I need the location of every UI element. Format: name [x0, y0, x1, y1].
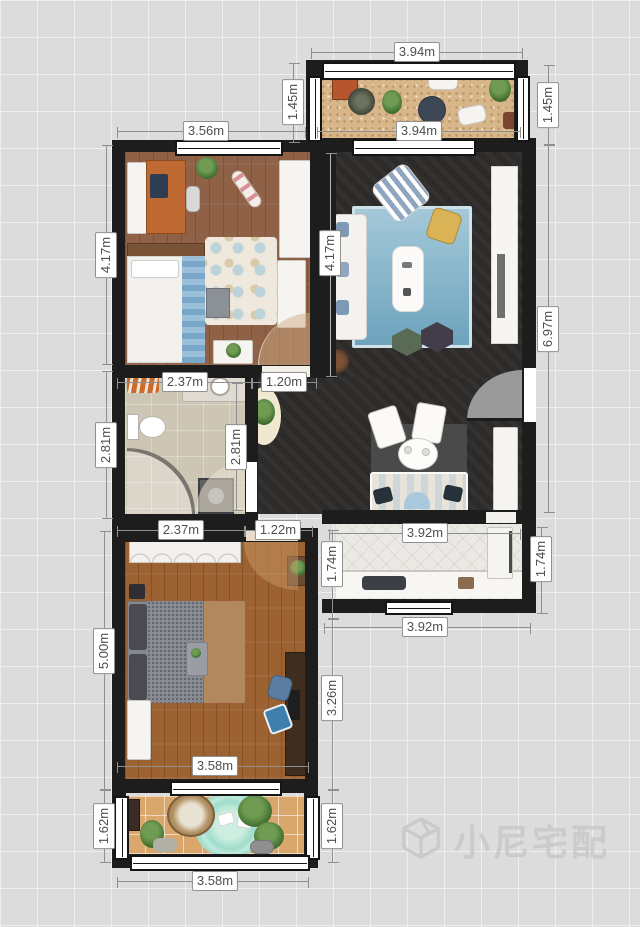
- dimension-text: 6.97m: [540, 311, 555, 347]
- pillow[interactable]: [129, 654, 147, 700]
- cube-logo-icon: [398, 815, 444, 866]
- dimension-text: 1.45m: [285, 84, 300, 120]
- stove[interactable]: [458, 577, 474, 589]
- side-table[interactable]: [206, 288, 230, 318]
- plate: [404, 446, 412, 454]
- wall-bedroom2-right: [305, 528, 318, 793]
- dimension-label: 3.26m: [321, 675, 343, 721]
- dimension-text: 1.62m: [324, 808, 339, 844]
- potted-plant[interactable]: [226, 343, 241, 358]
- dimension-label: 6.97m: [537, 306, 559, 352]
- round-table[interactable]: [418, 96, 446, 124]
- window-balcony2-right[interactable]: [305, 796, 320, 860]
- window-balcony-left[interactable]: [308, 76, 322, 142]
- pipe: [509, 531, 512, 573]
- door-leaf-entry[interactable]: [467, 418, 523, 421]
- entry-cabinet[interactable]: [493, 427, 518, 511]
- hanging-egg-chair[interactable]: [167, 793, 215, 837]
- tray-plant: [191, 648, 201, 658]
- bookshelf[interactable]: [127, 162, 147, 234]
- toilet-tank[interactable]: [127, 414, 139, 440]
- laptop[interactable]: [150, 174, 168, 198]
- coffee-table[interactable]: [392, 246, 424, 312]
- wardrobe[interactable]: [279, 160, 311, 258]
- door-opening-bathroom[interactable]: [246, 462, 257, 512]
- dimension-label: 4.17m: [319, 230, 341, 276]
- window-balcony2-left[interactable]: [114, 796, 129, 860]
- dimension-label: 2.81m: [225, 424, 247, 470]
- dimension-label: 3.56m: [183, 121, 229, 141]
- nightstand[interactable]: [129, 584, 145, 599]
- toilet[interactable]: [139, 416, 166, 438]
- dimension-label: 1.45m: [282, 79, 304, 125]
- dimension-label: 2.81m: [95, 422, 117, 468]
- window-balcony2-bottom[interactable]: [130, 855, 310, 871]
- dimension-text: 1.74m: [324, 546, 339, 582]
- dimension-label: 3.94m: [394, 42, 440, 62]
- window-bedroom1-top[interactable]: [175, 140, 283, 156]
- dimension-label: 3.92m: [402, 617, 448, 637]
- dimension-text: 2.37m: [167, 374, 203, 389]
- dimension-text: 3.26m: [324, 680, 339, 716]
- sofa-pillow[interactable]: [336, 300, 349, 315]
- dimension-text: 2.81m: [98, 427, 113, 463]
- dimension-text: 1.45m: [540, 87, 555, 123]
- pillow[interactable]: [129, 604, 147, 650]
- stepping-stone: [153, 838, 177, 852]
- pillow[interactable]: [131, 260, 179, 278]
- bed-headboard[interactable]: [127, 243, 205, 257]
- dimension-label: 3.94m: [396, 121, 442, 141]
- dresser[interactable]: [127, 700, 151, 760]
- dimension-label: 1.20m: [261, 372, 307, 392]
- dimension-text: 3.58m: [197, 758, 233, 773]
- window-living-top[interactable]: [352, 139, 476, 156]
- dimension-text: 3.58m: [197, 873, 233, 888]
- dimension-label: 1.74m: [530, 536, 552, 582]
- kitchen-sink[interactable]: [362, 576, 406, 590]
- dimension-label: 1.62m: [93, 803, 115, 849]
- floor-plan-canvas: 3.94m 1.45m 1.45m 3.56m 3.94m 4.17m 4.17…: [0, 0, 640, 927]
- potted-plant[interactable]: [382, 90, 402, 114]
- dimension-label: 1.74m: [321, 541, 343, 587]
- dimension-text: 3.92m: [407, 525, 443, 540]
- dimension-text: 5.00m: [96, 633, 111, 669]
- plate: [422, 448, 430, 456]
- dimension-label: 5.00m: [93, 628, 115, 674]
- sink[interactable]: [210, 377, 230, 396]
- dimension-text: 1.20m: [266, 374, 302, 389]
- table-decor: [403, 288, 411, 296]
- dimension-label: 3.58m: [192, 871, 238, 891]
- bed-blanket[interactable]: [182, 256, 205, 363]
- dimension-text: 1.74m: [533, 541, 548, 577]
- tv[interactable]: [497, 254, 505, 318]
- bed-tray[interactable]: [186, 642, 208, 676]
- door-opening-entry[interactable]: [524, 368, 536, 422]
- dimension-label: 3.58m: [192, 756, 238, 776]
- dimension-label: 1.62m: [321, 803, 343, 849]
- watermark-text: 小尼宅配: [454, 814, 610, 866]
- window-balcony-top[interactable]: [322, 62, 516, 80]
- desk-chair[interactable]: [186, 186, 200, 212]
- dimension-text: 4.17m: [98, 237, 113, 273]
- dimension-text: 4.17m: [322, 235, 337, 271]
- garden-stone: [250, 840, 274, 854]
- dimension-text: 2.81m: [228, 429, 243, 465]
- dimension-label: 2.37m: [162, 372, 208, 392]
- dining-table[interactable]: [398, 438, 438, 470]
- dimension-label: 1.45m: [537, 82, 559, 128]
- dimension-text: 3.94m: [401, 123, 437, 138]
- bed-blanket[interactable]: [203, 601, 245, 703]
- wardrobe[interactable]: [129, 541, 241, 563]
- window-kitchen-bottom[interactable]: [385, 601, 453, 615]
- dimension-text: 1.62m: [96, 808, 111, 844]
- door-opening-kitchen[interactable]: [486, 512, 516, 523]
- watermark: 小尼宅配: [398, 814, 610, 866]
- dimension-label: 2.37m: [158, 520, 204, 540]
- window-bedroom2-bottom[interactable]: [170, 781, 282, 796]
- dimension-text: 3.92m: [407, 619, 443, 634]
- potted-plant[interactable]: [196, 157, 218, 179]
- dimension-text: 1.22m: [260, 522, 296, 537]
- rattan-chair[interactable]: [348, 88, 375, 115]
- dimension-text: 3.56m: [188, 123, 224, 138]
- dimension-label: 1.22m: [255, 520, 301, 540]
- table-decor: [402, 262, 412, 268]
- dimension-text: 2.37m: [163, 522, 199, 537]
- dimension-label: 3.92m: [402, 523, 448, 543]
- window-balcony-right[interactable]: [516, 76, 530, 142]
- dimension-label: 4.17m: [95, 232, 117, 278]
- dimension-text: 3.94m: [399, 44, 435, 59]
